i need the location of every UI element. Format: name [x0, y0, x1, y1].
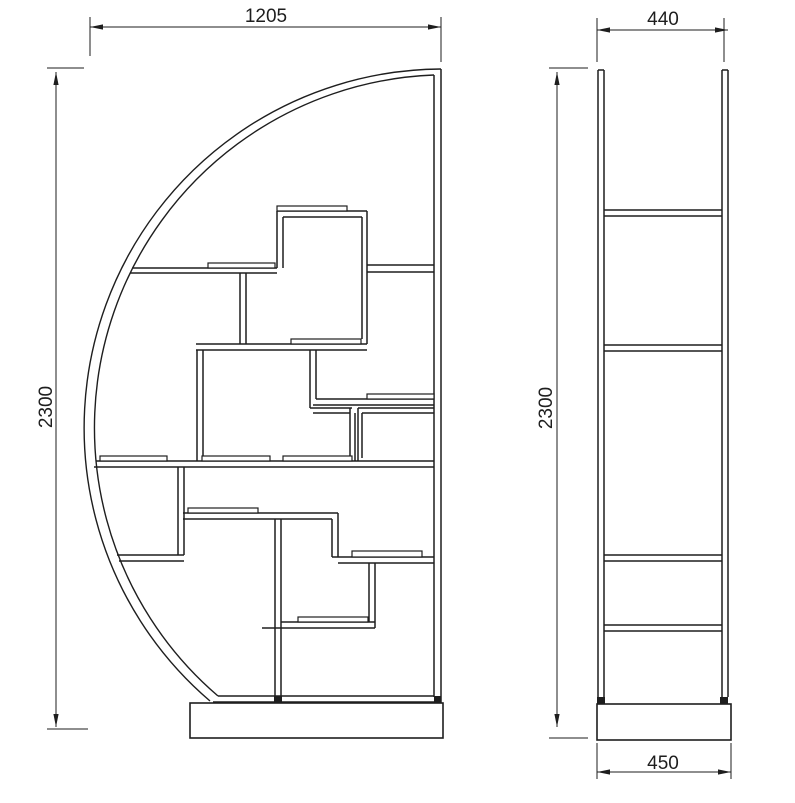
- front-view-shelf-ledge: [100, 456, 167, 461]
- side-view-foot: [720, 697, 728, 704]
- dimension-label: 440: [647, 9, 679, 30]
- front-view-shelf-ledge: [283, 456, 352, 461]
- dimension-arrowhead-icon: [718, 769, 731, 774]
- dimension-side-width: 440: [597, 9, 728, 62]
- dimension-arrowhead-icon: [597, 769, 610, 774]
- dimension-arrowhead-icon: [53, 72, 58, 85]
- dimension-arrowhead-icon: [428, 24, 441, 29]
- dimension-label: 2300: [536, 387, 557, 429]
- front-view-foot: [434, 696, 441, 703]
- front-view-curved-panel-arc: [84, 69, 441, 701]
- dimension-front-height: 2300: [36, 68, 88, 729]
- front-view: [84, 69, 443, 738]
- dimension-arrowhead-icon: [554, 714, 559, 727]
- side-view-base-plinth: [597, 704, 731, 740]
- front-view-shelf-ledge: [202, 456, 270, 461]
- dimension-arrowhead-icon: [90, 24, 103, 29]
- dimension-label: 450: [647, 753, 679, 774]
- front-view-foot: [274, 696, 282, 703]
- front-view-shelf-ledge: [298, 617, 368, 622]
- front-view-shelf-ledge: [291, 339, 361, 344]
- dimension-arrowhead-icon: [715, 27, 728, 32]
- dimension-label: 1205: [245, 6, 287, 27]
- front-view-shelf-ledge: [208, 263, 275, 268]
- front-view-shelf-ledge: [367, 394, 434, 399]
- side-view: [597, 70, 731, 740]
- drawing-sheet: 120523004402300450: [0, 0, 795, 803]
- front-view-base-plinth: [190, 703, 443, 738]
- front-view-shelf-ledge: [352, 551, 422, 557]
- dimension-arrowhead-icon: [597, 27, 610, 32]
- side-view-foot: [597, 697, 605, 704]
- technical-drawing: 120523004402300450: [0, 0, 795, 803]
- dimension-label: 2300: [36, 386, 57, 428]
- dimension-side-height: 2300: [536, 68, 588, 738]
- dimension-arrowhead-icon: [554, 72, 559, 85]
- front-view-shelf-ledge: [188, 508, 258, 513]
- front-view-curved-panel-arc: [94, 75, 434, 696]
- dimension-side-base-width: 450: [597, 743, 731, 779]
- dimension-arrowhead-icon: [53, 714, 58, 727]
- dimension-front-width: 1205: [90, 6, 441, 62]
- front-view-shelf-ledge: [277, 206, 347, 211]
